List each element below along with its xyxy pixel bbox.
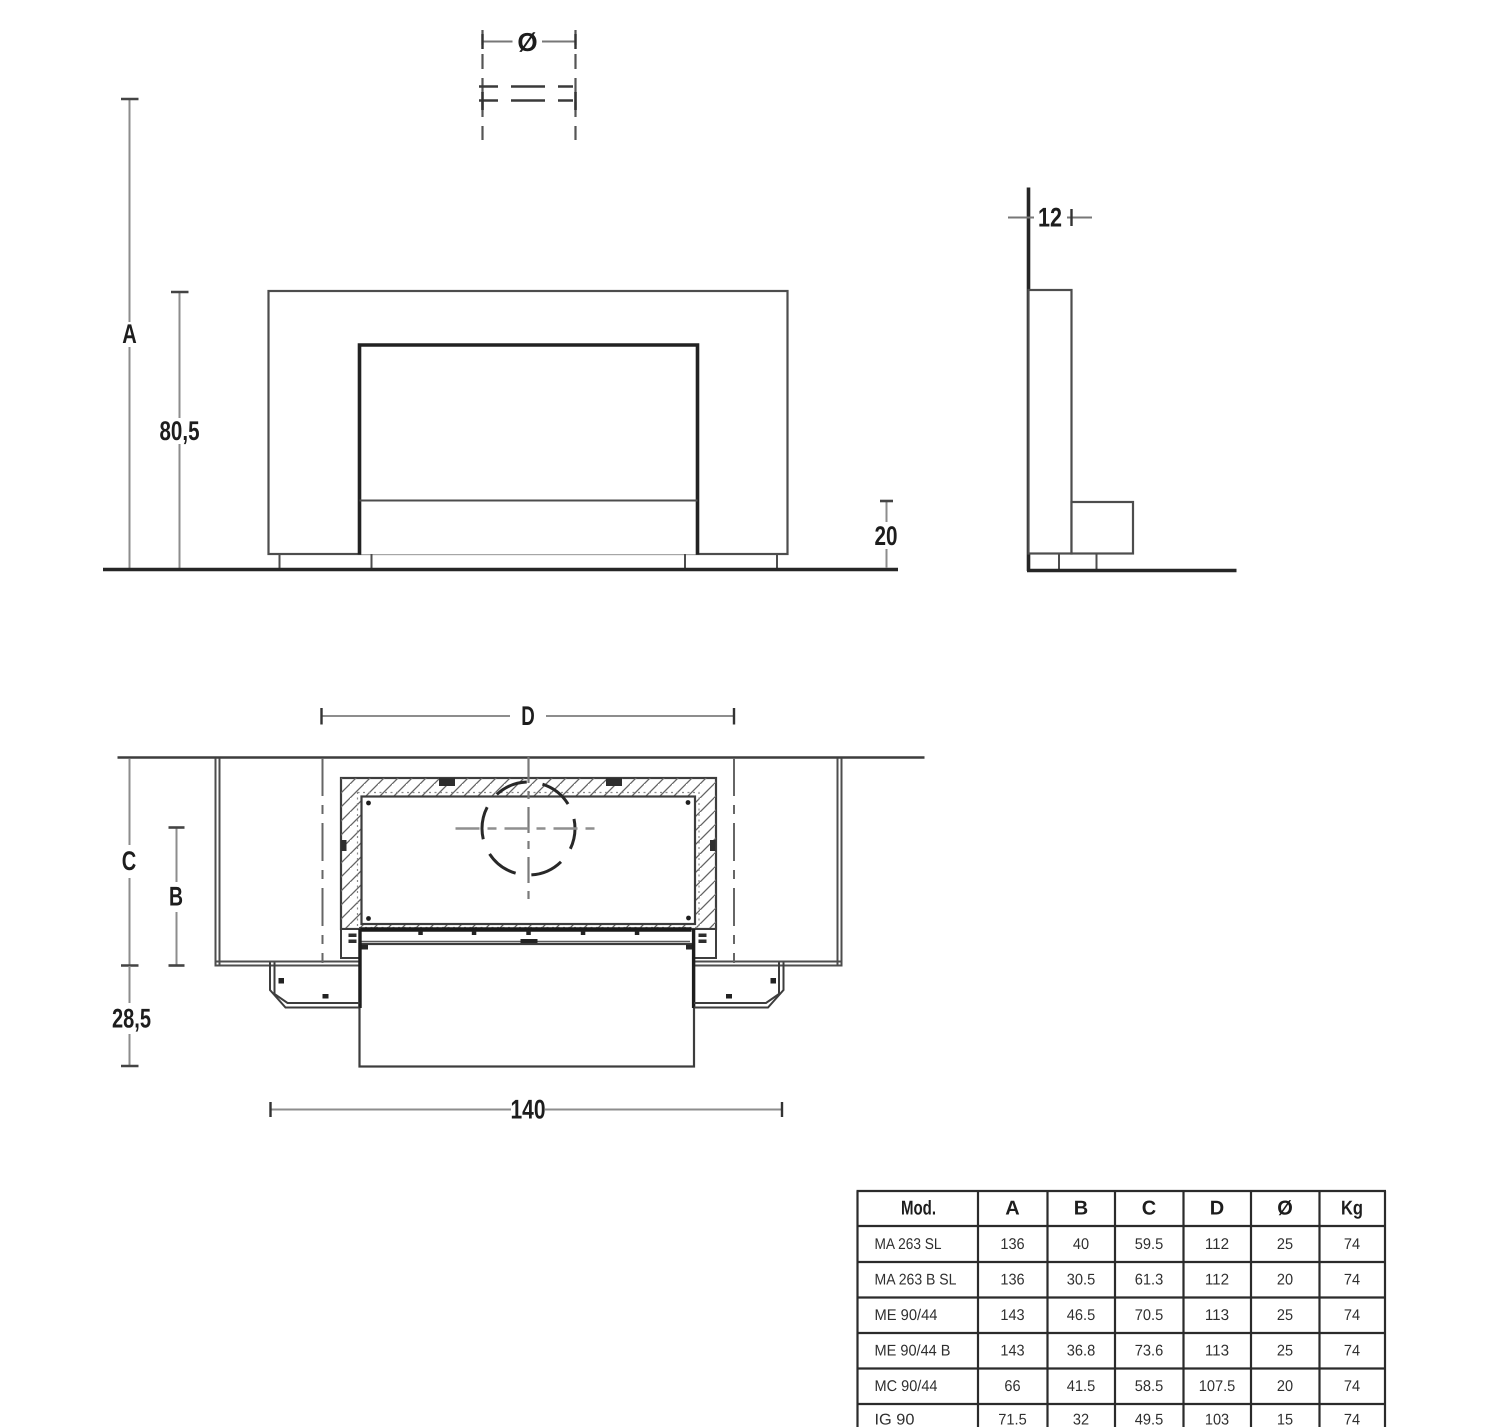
svg-text:30.5: 30.5 [1067, 1272, 1096, 1289]
svg-text:41.5: 41.5 [1067, 1378, 1096, 1395]
svg-text:74: 74 [1344, 1343, 1361, 1360]
svg-text:36.8: 36.8 [1067, 1343, 1096, 1360]
svg-text:D: D [1210, 1198, 1224, 1220]
svg-text:113: 113 [1205, 1343, 1229, 1360]
svg-text:A: A [122, 319, 137, 349]
svg-text:32: 32 [1073, 1412, 1089, 1427]
svg-text:136: 136 [1000, 1236, 1024, 1253]
svg-text:40: 40 [1073, 1236, 1090, 1253]
svg-text:74: 74 [1344, 1272, 1361, 1289]
svg-text:20: 20 [1277, 1378, 1294, 1395]
svg-text:71.5: 71.5 [998, 1412, 1027, 1427]
svg-text:112: 112 [1205, 1272, 1229, 1289]
svg-text:15: 15 [1277, 1412, 1293, 1427]
svg-text:107.5: 107.5 [1199, 1378, 1236, 1395]
svg-text:59.5: 59.5 [1135, 1236, 1164, 1253]
svg-text:25: 25 [1277, 1343, 1293, 1360]
svg-text:B: B [1074, 1198, 1088, 1220]
svg-text:Ø: Ø [1277, 1198, 1293, 1220]
svg-text:143: 143 [1000, 1307, 1024, 1324]
svg-text:A: A [1005, 1198, 1019, 1220]
svg-text:28,5: 28,5 [112, 1004, 151, 1034]
svg-text:MC 90/44: MC 90/44 [875, 1378, 938, 1395]
svg-text:C: C [1142, 1198, 1156, 1220]
svg-text:58.5: 58.5 [1135, 1378, 1164, 1395]
svg-text:49.5: 49.5 [1135, 1412, 1164, 1427]
svg-text:ME 90/44: ME 90/44 [875, 1307, 938, 1324]
svg-text:74: 74 [1344, 1378, 1361, 1395]
svg-text:61.3: 61.3 [1135, 1272, 1164, 1289]
svg-text:20: 20 [1277, 1272, 1294, 1289]
svg-text:D: D [521, 701, 535, 731]
svg-text:IG 90: IG 90 [875, 1412, 915, 1427]
svg-text:46.5: 46.5 [1067, 1307, 1096, 1324]
svg-text:74: 74 [1344, 1236, 1361, 1253]
svg-text:80,5: 80,5 [160, 416, 200, 446]
svg-text:70.5: 70.5 [1135, 1307, 1164, 1324]
svg-text:Ø: Ø [517, 27, 537, 57]
svg-text:74: 74 [1344, 1307, 1361, 1324]
svg-text:113: 113 [1205, 1307, 1229, 1324]
svg-text:66: 66 [1004, 1378, 1020, 1395]
svg-text:MA 263 B SL: MA 263 B SL [875, 1272, 957, 1289]
svg-text:MA 263 SL: MA 263 SL [875, 1236, 942, 1253]
svg-text:112: 112 [1205, 1236, 1229, 1253]
svg-text:Mod.: Mod. [901, 1198, 936, 1220]
svg-text:B: B [169, 882, 183, 912]
svg-text:25: 25 [1277, 1307, 1293, 1324]
svg-text:Kg: Kg [1341, 1198, 1363, 1220]
svg-text:103: 103 [1205, 1412, 1229, 1427]
svg-text:12: 12 [1038, 203, 1062, 233]
svg-text:136: 136 [1000, 1272, 1024, 1289]
svg-text:74: 74 [1344, 1412, 1361, 1427]
svg-text:140: 140 [511, 1095, 546, 1125]
svg-text:C: C [122, 846, 137, 876]
svg-text:25: 25 [1277, 1236, 1293, 1253]
svg-text:20: 20 [875, 521, 898, 551]
svg-text:ME 90/44 B: ME 90/44 B [875, 1343, 951, 1360]
svg-text:73.6: 73.6 [1135, 1343, 1164, 1360]
svg-text:143: 143 [1000, 1343, 1024, 1360]
